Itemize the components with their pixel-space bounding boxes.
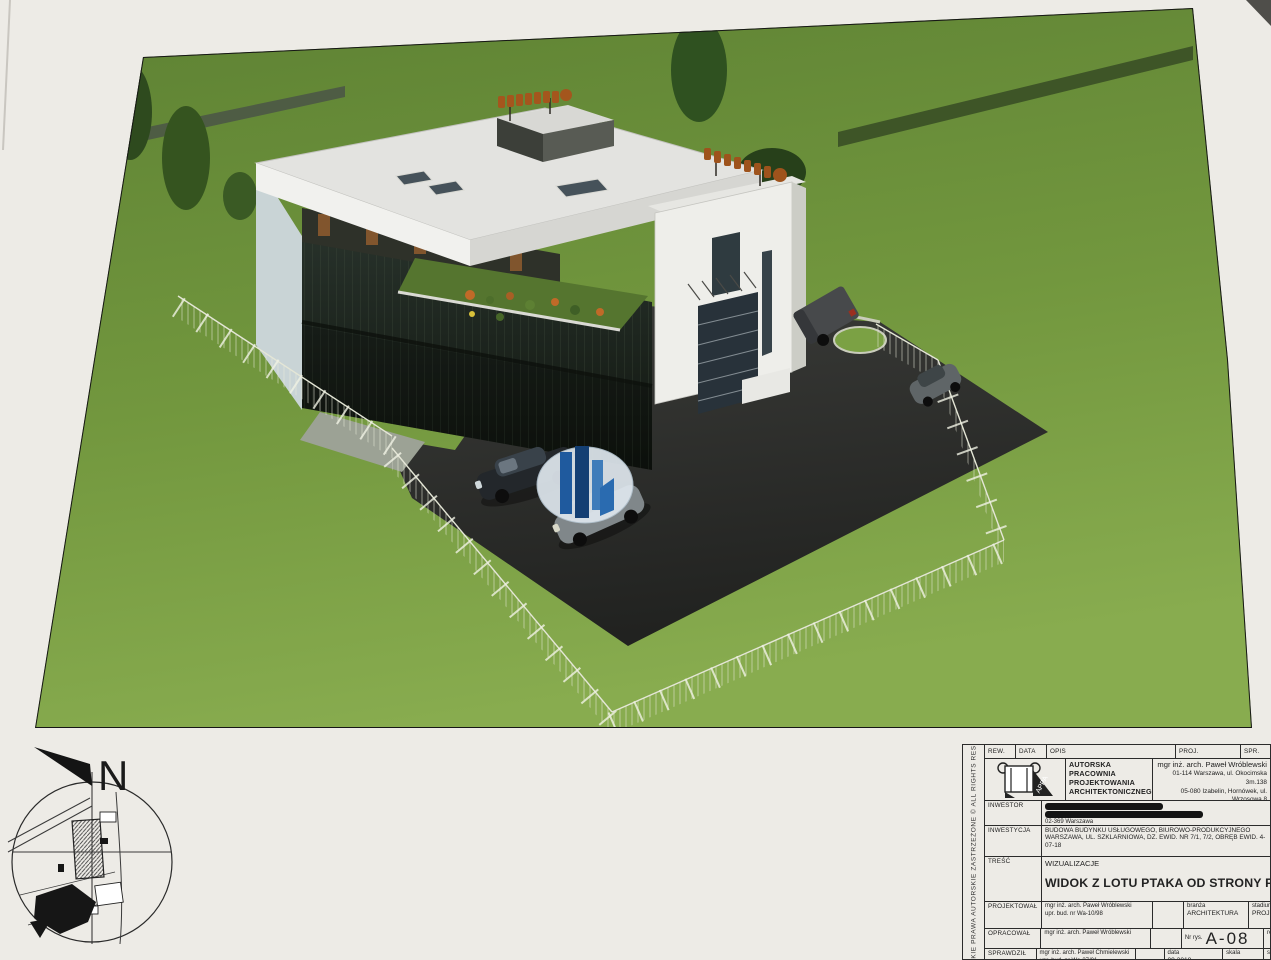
redacted-bar bbox=[1045, 811, 1203, 818]
sheet-subtitle: WIZUALIZACJE bbox=[1045, 860, 1267, 869]
inwestor-value: 02-369 Warszawa bbox=[1042, 801, 1270, 825]
watermark-logo bbox=[537, 446, 633, 523]
nr-rys-label: Nr rys. bbox=[1185, 935, 1203, 942]
inwestycja-row: INWESTYCJA BUDOWA BUDYNKU USŁUGOWEGO, BI… bbox=[985, 826, 1270, 857]
firm-name: AUTORSKA PRACOWNIA PROJEKTOWANIA ARCHITE… bbox=[1066, 759, 1153, 800]
copyright-text: WSZELKIE PRAWA AUTORSKIE ZASTRZEŻONE © A… bbox=[970, 744, 977, 960]
inwestycja-line1: BUDOWA BUDYNKU USŁUGOWEGO, BIUROWO-PRODU… bbox=[1045, 827, 1267, 834]
nr-rys-cell: Nr rys. A-08 bbox=[1182, 929, 1264, 948]
firm-address-1: 01-114 Warszawa, ul. Okocimska 3m.138 bbox=[1156, 770, 1267, 787]
opracowal-name: mgr inż. arch. Paweł Wróblewski bbox=[1044, 930, 1147, 938]
photo-corner bbox=[1246, 0, 1271, 26]
projektowal-row: PROJEKTOWAŁ mgr inż. arch. Paweł Wróblew… bbox=[985, 902, 1270, 929]
col-proj: PROJ. bbox=[1176, 745, 1241, 758]
wing-window-strip bbox=[762, 250, 772, 356]
paper-edge bbox=[3, 0, 10, 150]
firm-row: APPA AUTORSKA PRACOWNIA PROJEKTOWANIA AR… bbox=[985, 759, 1270, 801]
signature-cell bbox=[1136, 949, 1164, 959]
inwestycja-line2: WARSZAWA, UL. SZKLARNIOWA, DZ. EWID. NR … bbox=[1045, 834, 1267, 849]
firm-name-1: AUTORSKA bbox=[1069, 760, 1149, 769]
firm-name-3: PROJEKTOWANIA bbox=[1069, 778, 1149, 787]
col-data: DATA bbox=[1016, 745, 1047, 758]
firm-name-4: ARCHITEKTONICZNEGO bbox=[1069, 787, 1149, 796]
header-row: REW. DATA OPIS PROJ. SPR. bbox=[985, 745, 1270, 759]
tresc-value: WIZUALIZACJE WIDOK Z LOTU PTAKA OD STRON… bbox=[1042, 857, 1270, 901]
stadium-value: PROJEKT KONCEPC. bbox=[1252, 910, 1267, 918]
north-arrow-icon bbox=[34, 747, 92, 786]
data-label: data bbox=[1168, 950, 1220, 957]
wing-window-upper bbox=[712, 232, 740, 296]
inwestor-row: INWESTOR 02-369 Warszawa bbox=[985, 801, 1270, 826]
branza-cell: branża ARCHITEKTURA bbox=[1184, 902, 1249, 928]
inwestor-label: INWESTOR bbox=[985, 801, 1042, 825]
title-table: REW. DATA OPIS PROJ. SPR. APPA AUTORSKA bbox=[984, 744, 1271, 960]
site-building-hatched bbox=[72, 819, 104, 879]
redacted-bar bbox=[1045, 803, 1163, 810]
firm-author: mgr inż. arch. Paweł Wróblewski bbox=[1156, 760, 1267, 770]
opracowal-row: OPRACOWAŁ mgr inż. arch. Paweł Wróblewsk… bbox=[985, 929, 1270, 949]
branza-label: branża bbox=[1187, 903, 1245, 910]
branza-value: ARCHITEKTURA bbox=[1187, 910, 1245, 918]
tresc-row: TREŚĆ WIZUALIZACJE WIDOK Z LOTU PTAKA OD… bbox=[985, 857, 1270, 902]
north-label: N bbox=[98, 752, 128, 799]
data-value: 09.2018 bbox=[1168, 957, 1220, 959]
skala-cell: skala bbox=[1223, 949, 1264, 959]
copyright-strip: WSZELKIE PRAWA AUTORSKIE ZASTRZEŻONE © A… bbox=[962, 744, 984, 960]
stadium-label: stadium bbox=[1252, 903, 1267, 910]
data-cell: data 09.2018 bbox=[1165, 949, 1224, 959]
render-area bbox=[0, 0, 1271, 740]
firm-address-2: 05-080 Izabelin, Hornówek, ul. Wrzosowa … bbox=[1156, 788, 1267, 800]
title-block: WSZELKIE PRAWA AUTORSKIE ZASTRZEŻONE © A… bbox=[962, 744, 1271, 960]
tresc-label: TREŚĆ bbox=[985, 857, 1042, 901]
site-plan-compass: N bbox=[8, 747, 172, 944]
projektowal-name-cell: mgr inż. arch. Paweł Wróblewski upr. bud… bbox=[1042, 902, 1153, 928]
firm-name-2: PRACOWNIA bbox=[1069, 769, 1149, 778]
col-opis: OPIS bbox=[1047, 745, 1176, 758]
inwestycja-value: BUDOWA BUDYNKU USŁUGOWEGO, BIUROWO-PRODU… bbox=[1042, 826, 1270, 856]
sprawdzil-name: mgr inż. arch. Paweł Chmielewski bbox=[1040, 950, 1133, 958]
wing-side bbox=[792, 182, 806, 372]
projektowal-label: PROJEKTOWAŁ bbox=[985, 902, 1042, 928]
sheet-title: WIDOK Z LOTU PTAKA OD STRONY PŁD.-ZACHOD… bbox=[1045, 876, 1267, 890]
appa-logo: APPA bbox=[985, 759, 1066, 800]
skala-label: skala bbox=[1226, 950, 1260, 957]
opracowal-label: OPRACOWAŁ bbox=[985, 929, 1041, 948]
projektowal-upr: upr. bud. nr Wa-10/98 bbox=[1045, 911, 1149, 919]
inwestycja-label: INWESTYCJA bbox=[985, 826, 1042, 856]
projektowal-name: mgr inż. arch. Paweł Wróblewski bbox=[1045, 903, 1149, 911]
opracowal-name-cell: mgr inż. arch. Paweł Wróblewski bbox=[1041, 929, 1151, 948]
rew-col-fragment: rew bbox=[1264, 929, 1270, 948]
stadium-cell: stadium PROJEKT KONCEPC. bbox=[1249, 902, 1270, 928]
col-spr: SPR. bbox=[1241, 745, 1270, 758]
inwestor-city: 02-369 Warszawa bbox=[1045, 819, 1267, 825]
signature-cell bbox=[1153, 902, 1184, 928]
col-rew: REW. bbox=[985, 745, 1016, 758]
sprawdzil-upr: upr. bud. nr Wa-37/01 bbox=[1040, 958, 1133, 959]
str-col-fragment: str bbox=[1264, 949, 1270, 959]
drawing-number: A-08 bbox=[1206, 930, 1250, 947]
sprawdzil-name-cell: mgr inż. arch. Paweł Chmielewski upr. bu… bbox=[1037, 949, 1137, 959]
sprawdzil-label: SPRAWDZIŁ bbox=[985, 949, 1037, 959]
firm-address: mgr inż. arch. Paweł Wróblewski 01-114 W… bbox=[1153, 759, 1270, 800]
signature-cell bbox=[1151, 929, 1182, 948]
sprawdzil-row: SPRAWDZIŁ mgr inż. arch. Paweł Chmielews… bbox=[985, 949, 1270, 959]
